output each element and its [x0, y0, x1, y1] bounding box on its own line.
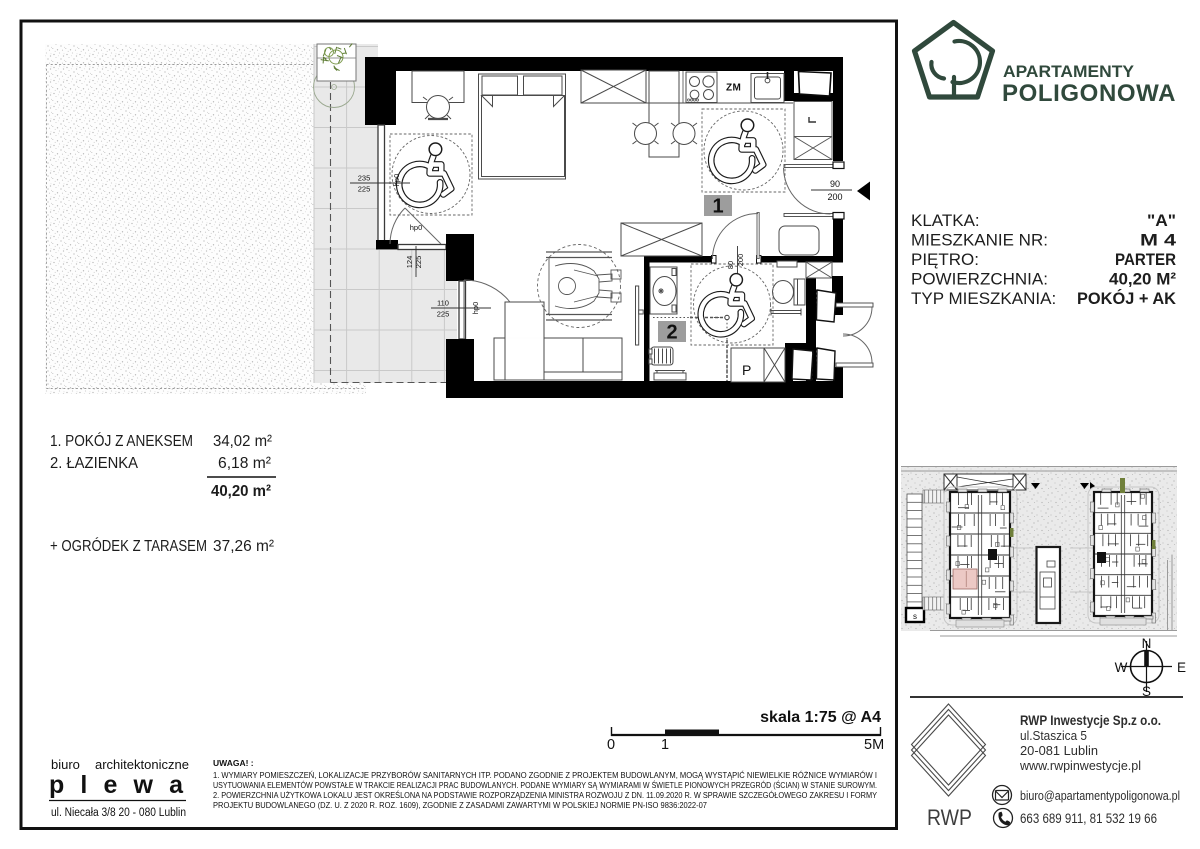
svg-text:1. WYMIARY POMIESZCZEŃ, LOK: 1. WYMIARY POMIESZCZEŃ, LOKALIZACJE PRZY… — [213, 771, 877, 780]
svg-text:235: 235 — [358, 174, 371, 183]
svg-text:6,18 m²: 6,18 m² — [218, 455, 272, 472]
svg-text:POLIGONOWA: POLIGONOWA — [1002, 80, 1176, 107]
svg-text:UWAGA! :: UWAGA! : — [213, 758, 254, 768]
svg-text:40,20 M²: 40,20 M² — [1109, 270, 1176, 289]
svg-text:POWIERZCHNIA:: POWIERZCHNIA: — [911, 270, 1048, 289]
svg-text:225: 225 — [414, 256, 423, 269]
svg-text:TYP MIESZKANIA:: TYP MIESZKANIA: — [911, 289, 1056, 308]
svg-text:PARTER: PARTER — [1115, 250, 1176, 269]
svg-text:hp0: hp0 — [471, 302, 480, 315]
svg-text:34,02 m²: 34,02 m² — [213, 433, 273, 450]
svg-text:RWP: RWP — [927, 805, 972, 830]
svg-text:2: 2 — [666, 322, 677, 344]
svg-text:USYTUOWANIA ELEMENTÓW POWSTAŁE: USYTUOWANIA ELEMENTÓW POWSTAŁE W TRAKCIE… — [213, 781, 877, 790]
svg-text:ul. Niecała 3/8 20 - 080 Lubl: ul. Niecała 3/8 20 - 080 Lublin — [51, 807, 186, 819]
svg-text:40,20 m²: 40,20 m² — [211, 483, 271, 500]
svg-text:M 4: M 4 — [1140, 231, 1177, 250]
svg-text:ul.Staszica 5: ul.Staszica 5 — [1020, 728, 1087, 743]
svg-text:20-081 Lublin: 20-081 Lublin — [1020, 743, 1098, 758]
svg-text:80: 80 — [726, 261, 735, 269]
svg-text:110: 110 — [437, 299, 449, 308]
svg-text:663 689 911, 81 532 19 66: 663 689 911, 81 532 19 66 — [1020, 811, 1157, 826]
svg-text:"A": "A" — [1147, 211, 1176, 230]
svg-text:PROJEKTU BUDOWLANEGO (DZ. U. Z: PROJEKTU BUDOWLANEGO (DZ. U. Z 2020 R. R… — [213, 801, 708, 810]
svg-text:P: P — [742, 362, 751, 378]
svg-text:1: 1 — [661, 737, 669, 753]
svg-text:2. POWIERZCHNIA UŻYTKOWA LO: 2. POWIERZCHNIA UŻYTKOWA LOKALU JEST OKR… — [213, 791, 878, 800]
svg-text:hp0: hp0 — [410, 223, 423, 232]
svg-text:N: N — [1142, 636, 1152, 651]
svg-text:225: 225 — [358, 185, 371, 194]
svg-text:200: 200 — [827, 192, 842, 202]
svg-text:0: 0 — [607, 737, 615, 753]
svg-text:hp0: hp0 — [392, 174, 401, 187]
svg-text:1: 1 — [712, 196, 723, 218]
svg-text:37,26 m²: 37,26 m² — [213, 538, 275, 555]
svg-text:s: s — [913, 612, 917, 621]
svg-text:ZM: ZM — [726, 83, 741, 94]
svg-text:W: W — [1115, 660, 1128, 675]
svg-text:2. ŁAZIENKA: 2. ŁAZIENKA — [50, 455, 138, 472]
svg-text:skala 1:75 @ A4: skala 1:75 @ A4 — [760, 709, 881, 726]
svg-text:biuro: biuro — [51, 757, 80, 772]
svg-text:MIESZKANIE NR:: MIESZKANIE NR: — [911, 231, 1048, 250]
svg-text:200: 200 — [736, 254, 745, 267]
svg-text:225: 225 — [437, 310, 450, 319]
svg-text:90: 90 — [830, 179, 840, 189]
svg-text:biuro@apartamentypoligonowa.pl: biuro@apartamentypoligonowa.pl — [1020, 789, 1180, 803]
svg-text:+ OGRÓDEK Z TARASEM: + OGRÓDEK Z TARASEM — [50, 536, 207, 555]
svg-text:1. POKÓJ Z ANEKSEM: 1. POKÓJ Z ANEKSEM — [50, 431, 193, 450]
svg-text:RWP Inwestycje Sp.z o.o.: RWP Inwestycje Sp.z o.o. — [1020, 713, 1161, 728]
svg-text:5M: 5M — [864, 737, 884, 753]
svg-text:E: E — [1177, 660, 1186, 675]
svg-text:PIĘTRO:: PIĘTRO: — [911, 250, 979, 269]
svg-text:POKÓJ + AK: POKÓJ + AK — [1077, 289, 1177, 308]
svg-text:architektoniczne: architektoniczne — [95, 757, 189, 772]
svg-text:KLATKA:: KLATKA: — [911, 211, 980, 230]
svg-text:www.rwpinwestycje.pl: www.rwpinwestycje.pl — [1019, 758, 1141, 773]
svg-text:APARTAMENTY: APARTAMENTY — [1003, 62, 1135, 81]
svg-text:124: 124 — [405, 256, 414, 269]
